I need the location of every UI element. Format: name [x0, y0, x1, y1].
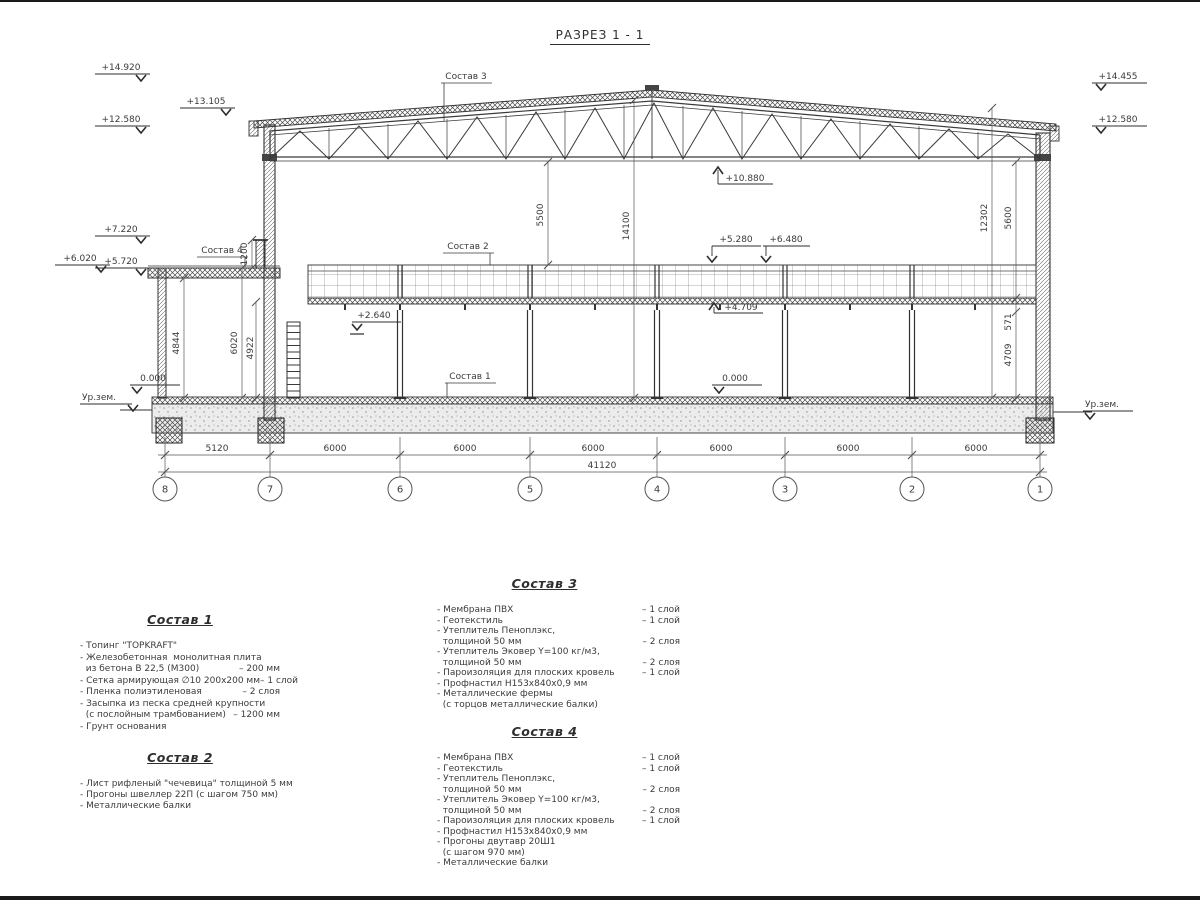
spec-row: (с послойным трамбованием)– 1200 мм [80, 710, 280, 722]
spec-row: - Засыпка из песка средней крупности [80, 699, 280, 711]
vdim-4709: 4709 [1004, 343, 1014, 366]
spec-row: толщиной 50 мм– 2 слоя [437, 785, 680, 796]
stair [287, 322, 300, 398]
tag-sostav1: Состав 1 [449, 372, 490, 382]
tag-sostav3: Состав 3 [445, 72, 486, 82]
vdim-14100: 14100 [622, 211, 632, 240]
grid-bubble-7: 7 [267, 485, 273, 496]
spec-row: - Утеплитель Пеноплэкс, [437, 626, 680, 637]
elev-left-0: +14.920 [101, 63, 140, 73]
spec-row: толщиной 50 мм– 2 слоя [437, 658, 680, 669]
elev-int-6480: +6.480 [769, 235, 803, 245]
elev-int-0000-main: 0.000 [722, 374, 748, 384]
spec-title: Состав 4 [437, 724, 652, 739]
dim-total: 41120 [588, 461, 617, 471]
vdim-12302: 12302 [980, 204, 990, 233]
grid-bubbles: 8 7 6 5 4 3 2 1 [153, 477, 1052, 501]
sheet-border-bottom [0, 896, 1200, 900]
dim-span-0: 5120 [206, 444, 229, 454]
elev-int-4709: +4.709 [724, 303, 758, 313]
spec-row: - Утеплитель Эковер Y=100 кг/м3, [437, 795, 680, 806]
spec-row: - Утеплитель Пеноплэкс, [437, 774, 680, 785]
roof-truss [270, 95, 1040, 161]
ground-label-right: Ур.зем. [1085, 400, 1119, 410]
spec-block-sostav3: Состав 3 - Мембрана ПВХ– 1 слой - Геотек… [437, 576, 680, 710]
grid-bubble-5: 5 [527, 485, 533, 496]
spec-title: Состав 2 [80, 750, 280, 765]
tag-sostav4: Состав 4 [201, 246, 243, 256]
spec-row: - Металлические фермы [437, 689, 680, 700]
spec-row: (с шагом 970 мм) [437, 848, 680, 859]
spec-row: из бетона В 22,5 (М300)– 200 мм [80, 664, 280, 676]
spec-block-sostav2: Состав 2 - Лист рифленый "чечевица" толщ… [80, 750, 310, 812]
spec-row: (с торцов металлические балки) [437, 700, 680, 711]
spec-row: - Геотекстиль– 1 слой [437, 616, 680, 627]
spec-row: - Сетка армирующая ∅10 200х200 мм– 1 сло… [80, 676, 280, 688]
grid-bubble-8: 8 [162, 485, 168, 496]
annex [148, 240, 280, 398]
elev-right-1: +12.580 [1098, 115, 1137, 125]
mezzanine-platform [308, 265, 1036, 310]
dim-span-4: 6000 [710, 444, 733, 454]
spec-title: Состав 3 [437, 576, 652, 591]
spec-row: толщиной 50 мм– 2 слоя [437, 806, 680, 817]
spec-row: - Мембрана ПВХ– 1 слой [437, 753, 680, 764]
spec-row: толщиной 50 мм– 2 слоя [437, 637, 680, 648]
elev-int-5280: +5.280 [719, 235, 753, 245]
spec-row: - Утеплитель Эковер Y=100 кг/м3, [437, 647, 680, 658]
dim-span-1: 6000 [324, 444, 347, 454]
elevation-marks-left: +14.920 +13.105 +12.580 +7.220 +6.020 +5… [55, 63, 235, 275]
spec-row: - Прогоны двутавр 20Ш1 [437, 837, 680, 848]
elev-left-4: +6.020 [63, 254, 97, 264]
spec-title: Состав 1 [80, 612, 280, 627]
spec-row: - Пленка полиэтиленовая– 2 слоя [80, 687, 280, 699]
spec-row: - Геотекстиль– 1 слой [437, 764, 680, 775]
elev-int-2640: +2.640 [357, 311, 391, 321]
grid-bubble-3: 3 [782, 485, 788, 496]
grid-bubble-1: 1 [1037, 485, 1043, 496]
spec-row: - Прогоны швеллер 22П (с шагом 750 мм) [80, 790, 310, 801]
vdim-5500: 5500 [536, 203, 546, 226]
elev-left-1: +13.105 [186, 97, 225, 107]
elev-right-0: +14.455 [1098, 72, 1137, 82]
section-drawing: Состав 3 Состав 2 Состав 4 Состав 1 +14.… [0, 0, 1200, 530]
vdim-1200: 1200 [240, 242, 250, 265]
tag-sostav2: Состав 2 [447, 242, 488, 252]
spec-row: - Профнастил Н153х840х0,9 мм [437, 679, 680, 690]
dim-span-2: 6000 [454, 444, 477, 454]
spec-row: - Профнастил Н153х840х0,9 мм [437, 827, 680, 838]
interior-columns [394, 310, 918, 398]
grid-bubble-4: 4 [654, 485, 660, 496]
spec-row: - Лист рифленый "чечевица" толщиной 5 мм [80, 779, 310, 790]
dim-span-6: 6000 [965, 444, 988, 454]
grid-bubble-2: 2 [909, 485, 915, 496]
elev-left-3: +7.220 [104, 225, 138, 235]
spec-row: - Топинг "TOPKRAFT" [80, 641, 280, 653]
dim-span-5: 6000 [837, 444, 860, 454]
spec-row: - Пароизоляция для плоских кровель– 1 сл… [437, 816, 680, 827]
spec-row: - Металлические балки [437, 858, 680, 869]
roof [249, 85, 1059, 141]
spec-row: - Железобетонная монолитная плита [80, 653, 280, 665]
vdim-5600: 5600 [1004, 206, 1014, 229]
spec-row: - Мембрана ПВХ– 1 слой [437, 605, 680, 616]
spec-row: - Пароизоляция для плоских кровель– 1 сл… [437, 668, 680, 679]
spec-row: - Грунт основания [80, 722, 280, 734]
dimension-chain: 5120 6000 6000 6000 6000 6000 6000 41120 [158, 437, 1047, 477]
spec-block-sostav1: Состав 1 - Топинг "TOPKRAFT" - Железобет… [80, 612, 280, 733]
elev-left-2: +12.580 [101, 115, 140, 125]
elev-left-5: +5.720 [104, 257, 138, 267]
vdim-4844: 4844 [172, 331, 182, 354]
elevation-marks-right: +14.455 +12.580 [1092, 72, 1147, 133]
elev-int-10880: +10.880 [725, 174, 764, 184]
spec-block-sostav4: Состав 4 - Мембрана ПВХ– 1 слой - Геотек… [437, 724, 680, 869]
grid-bubble-6: 6 [397, 485, 403, 496]
dim-span-3: 6000 [582, 444, 605, 454]
vdim-571: 571 [1004, 313, 1014, 330]
vdim-6020: 6020 [230, 331, 240, 354]
vdim-4922: 4922 [246, 337, 256, 360]
elev-int-0000-annex: 0.000 [140, 374, 166, 384]
ground-label-left: Ур.зем. [82, 393, 116, 403]
spec-row: - Металлические балки [80, 801, 310, 812]
